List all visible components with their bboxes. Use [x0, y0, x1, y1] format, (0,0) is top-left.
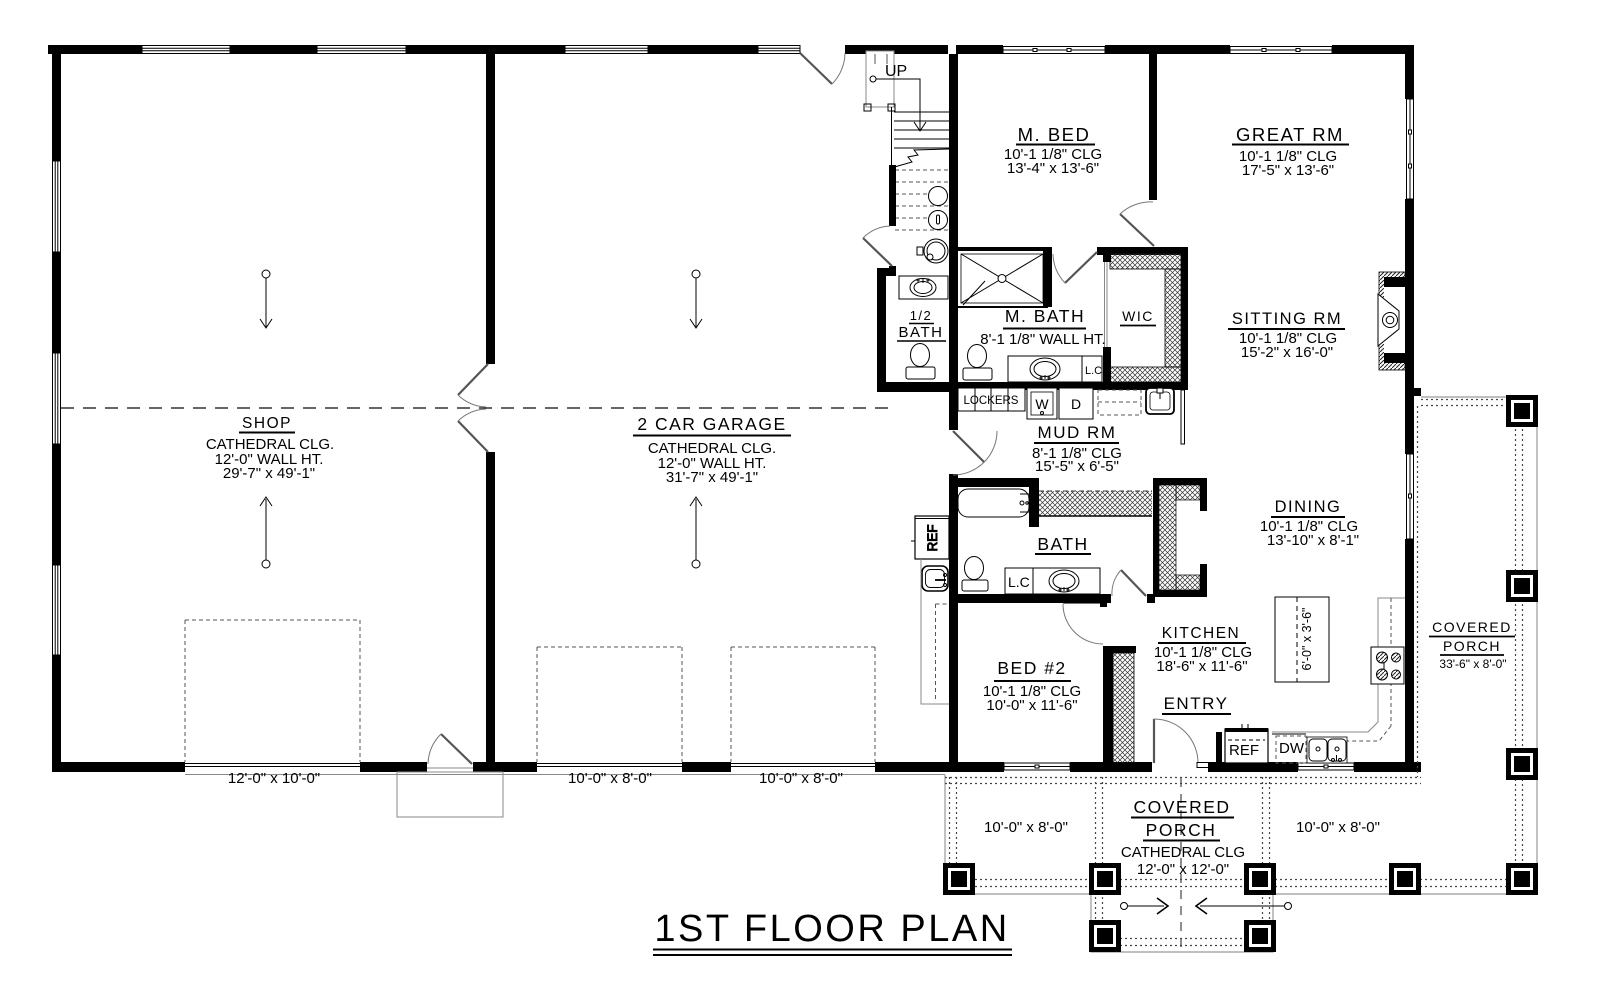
svg-text:10'-0" x 8'-0": 10'-0" x 8'-0" [568, 770, 652, 787]
svg-text:SITTING RM: SITTING RM [1232, 310, 1342, 328]
svg-text:D: D [1071, 396, 1081, 412]
svg-text:LOCKERS: LOCKERS [964, 395, 1019, 407]
svg-text:ENTRY: ENTRY [1164, 694, 1229, 713]
svg-text:10'-0" x 8'-0": 10'-0" x 8'-0" [759, 770, 843, 787]
svg-text:1/2: 1/2 [910, 308, 933, 323]
svg-text:12'-0" x 10'-0": 12'-0" x 10'-0" [228, 770, 320, 787]
svg-text:L.C: L.C [1008, 574, 1030, 590]
svg-text:KITCHEN: KITCHEN [1162, 625, 1241, 642]
svg-text:15'-2" x 16'-0": 15'-2" x 16'-0" [1241, 344, 1333, 361]
svg-text:33'-6" x 8'-0": 33'-6" x 8'-0" [1439, 657, 1506, 671]
svg-text:UP: UP [885, 63, 907, 80]
svg-text:COVERED: COVERED [1133, 797, 1230, 817]
svg-text:DINING: DINING [1275, 498, 1342, 516]
svg-text:31'-7" x 49'-1": 31'-7" x 49'-1" [666, 469, 758, 486]
svg-text:13'-4" x 13'-6": 13'-4" x 13'-6" [1007, 160, 1099, 177]
svg-text:REF: REF [1229, 742, 1259, 759]
svg-text:1ST FLOOR PLAN: 1ST FLOOR PLAN [654, 908, 1009, 950]
svg-text:GREAT RM: GREAT RM [1236, 124, 1344, 145]
svg-text:13'-10" x 8'-1": 13'-10" x 8'-1" [1267, 532, 1359, 549]
svg-text:PORCH: PORCH [1146, 820, 1217, 840]
svg-text:BED #2: BED #2 [997, 658, 1066, 678]
svg-text:17'-5" x 13'-6": 17'-5" x 13'-6" [1242, 162, 1334, 179]
svg-text:6'-0" x 3'-6": 6'-0" x 3'-6" [1300, 608, 1314, 671]
svg-text:10'-0" x 8'-0": 10'-0" x 8'-0" [984, 819, 1068, 836]
svg-text:BATH: BATH [1037, 534, 1088, 554]
svg-text:15'-5" x 6'-5": 15'-5" x 6'-5" [1035, 458, 1119, 475]
svg-text:WIC: WIC [1122, 308, 1154, 324]
svg-text:2 CAR GARAGE: 2 CAR GARAGE [637, 414, 786, 434]
svg-text:10'-0" x 8'-0": 10'-0" x 8'-0" [1296, 819, 1380, 836]
svg-text:12'-0" x 12'-0": 12'-0" x 12'-0" [1137, 861, 1229, 878]
svg-text:M. BATH: M. BATH [1005, 306, 1085, 326]
svg-text:8'-1 1/8" WALL HT.: 8'-1 1/8" WALL HT. [980, 331, 1105, 348]
svg-text:M. BED: M. BED [1018, 124, 1091, 145]
svg-text:MUD RM: MUD RM [1038, 423, 1117, 442]
svg-text:DW: DW [1279, 740, 1305, 757]
svg-text:CATHEDRAL CLG: CATHEDRAL CLG [1121, 844, 1245, 861]
svg-text:10'-0" x 11'-6": 10'-0" x 11'-6" [986, 697, 1077, 714]
svg-text:18'-6" x 11'-6": 18'-6" x 11'-6" [1156, 658, 1247, 675]
svg-text:PORCH: PORCH [1443, 638, 1501, 654]
svg-text:COVERED: COVERED [1432, 619, 1512, 635]
svg-text:29'-7" x 49'-1": 29'-7" x 49'-1" [223, 465, 315, 482]
svg-text:REF: REF [925, 525, 940, 552]
svg-text:BATH: BATH [899, 324, 944, 341]
svg-text:L.C: L.C [1085, 365, 1102, 377]
svg-text:W: W [1035, 396, 1049, 412]
svg-text:SHOP: SHOP [242, 415, 292, 432]
